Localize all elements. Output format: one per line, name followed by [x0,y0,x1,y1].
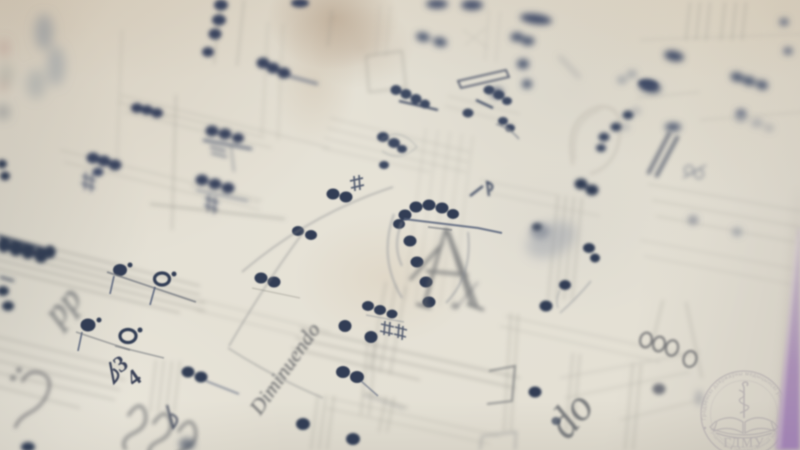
svg-text:Diminuendo: Diminuendo [244,318,325,420]
svg-text:ГДМУ: ГДМУ [723,435,764,450]
svg-text:4: 4 [122,364,146,391]
